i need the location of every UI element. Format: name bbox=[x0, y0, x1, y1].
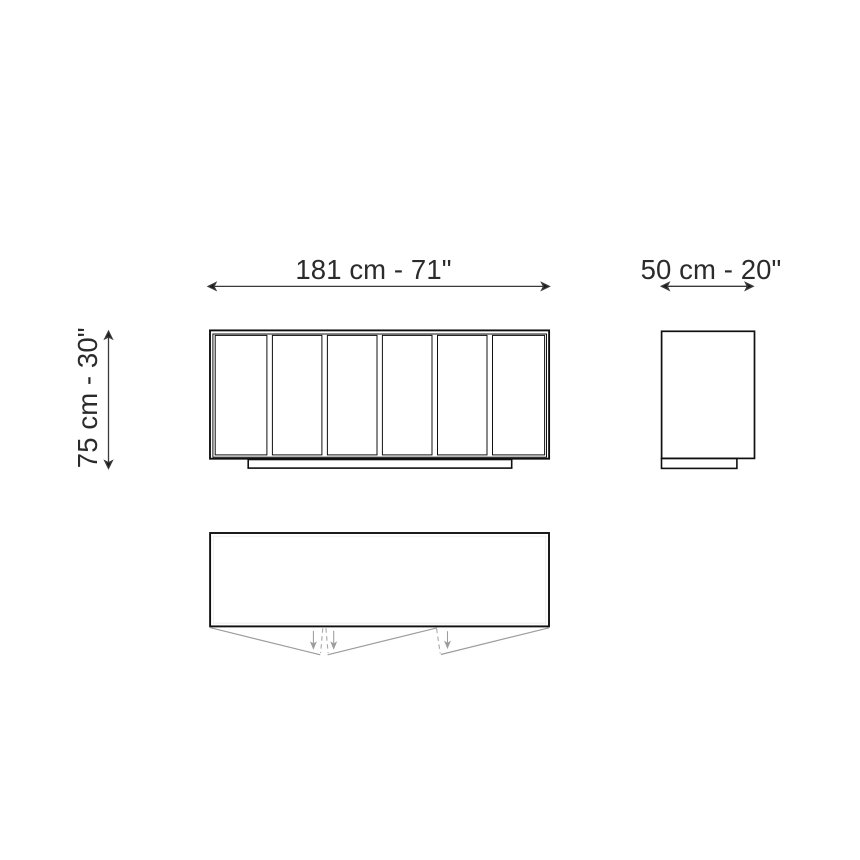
svg-text:181 cm - 71": 181 cm - 71" bbox=[295, 254, 451, 285]
svg-text:50 cm - 20": 50 cm - 20" bbox=[641, 254, 782, 285]
svg-text:75 cm - 30": 75 cm - 30" bbox=[72, 327, 103, 468]
